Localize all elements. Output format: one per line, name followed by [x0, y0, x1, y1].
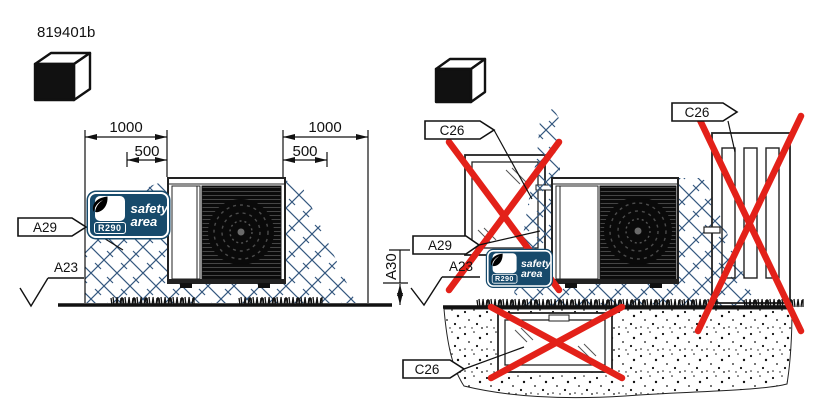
heat-pump-unit [168, 178, 285, 288]
badge-text: safety area [521, 258, 551, 279]
dim-1000-right: 1000 [308, 119, 341, 136]
badge-text: safety area [131, 202, 169, 229]
label-a23-group: A23 [20, 260, 84, 306]
label-c26: C26 [685, 105, 710, 120]
isometric-cube-icon [35, 53, 90, 100]
label-a29: A29 [33, 220, 57, 235]
vent-handle [704, 227, 720, 233]
soil-section [444, 309, 792, 398]
dim-500-left: 500 [134, 143, 159, 160]
leaf-icon [95, 196, 125, 221]
fan-icon [208, 199, 274, 265]
badge-text-line1: safety [131, 202, 169, 215]
safety-area-badge: R290 safety area [88, 192, 169, 238]
safety-area-badge: R290 safety area [487, 250, 552, 287]
label-a23-group: A23 [411, 259, 480, 305]
refrigerant-label: R290 [492, 274, 517, 284]
heat-pump-unit [552, 178, 678, 288]
installation-diagram-canvas: 819401b 1000 [0, 0, 826, 417]
right-installation-view: C26 C26 C26 A29 A23 [403, 59, 803, 398]
refrigerant-label: R290 [94, 222, 126, 235]
label-a23: A23 [54, 260, 78, 275]
badge-refrigerant-block: R290 [492, 253, 517, 284]
label-a29: A29 [428, 238, 452, 253]
dim-500-right: 500 [292, 143, 317, 160]
badge-text-line2: area [521, 268, 551, 279]
dim-1000-left: 1000 [109, 119, 142, 136]
label-a23: A23 [449, 259, 473, 274]
left-installation-view: 1000 500 1000 500 A30 [18, 53, 410, 306]
fan-icon [604, 197, 672, 265]
isometric-cube-icon [436, 59, 485, 102]
label-c26: C26 [415, 362, 440, 377]
label-a30: A30 [383, 253, 400, 280]
label-c26: C26 [440, 123, 465, 138]
leaf-icon [492, 253, 516, 273]
window-handle [549, 315, 569, 321]
badge-text-line2: area [131, 215, 169, 228]
surface-level-icon [411, 277, 480, 305]
surface-level-icon [20, 278, 84, 306]
badge-refrigerant-block: R290 [94, 196, 126, 235]
